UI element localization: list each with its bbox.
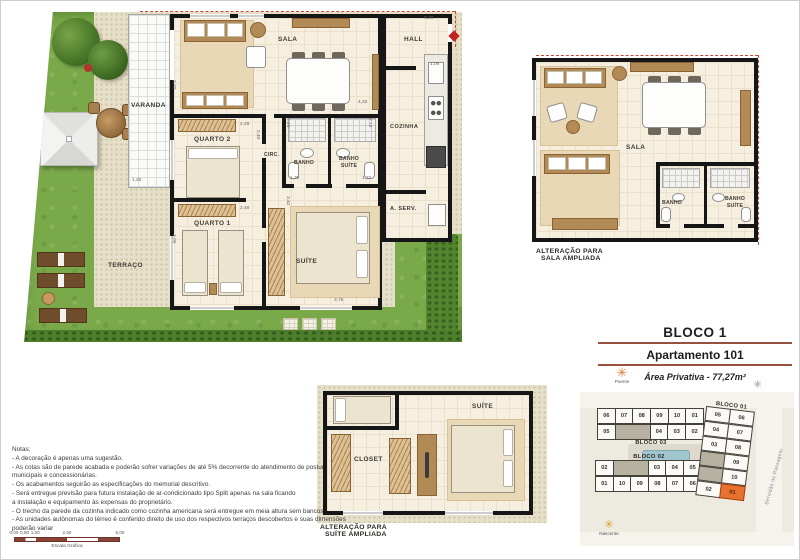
sideboard: [552, 218, 618, 230]
sofa-cushion: [207, 23, 225, 37]
note-line: municipais e concessionárias.: [12, 472, 357, 481]
stove: [428, 96, 444, 120]
interior-wall: [174, 114, 262, 118]
scale-tick-label: 0,50: [20, 530, 29, 535]
flower-icon: [84, 64, 92, 72]
unit-cell: 08: [648, 476, 667, 492]
shower: [662, 168, 700, 188]
unit-cell: 07: [615, 408, 634, 424]
block-core: [615, 424, 651, 440]
bathroom-sink: [300, 148, 314, 158]
varanda-door-opening: [170, 30, 174, 80]
sofa-cushion: [226, 95, 244, 106]
room-label-banho: BANHO: [294, 160, 314, 166]
interior-wall: [174, 198, 246, 202]
room-label-alt-sala: SALA: [626, 144, 645, 151]
window: [343, 511, 383, 515]
shower: [710, 168, 750, 188]
sofa-cushion: [547, 71, 564, 84]
bloco3-row1: 060708091001: [598, 408, 704, 424]
nightstand: [209, 283, 217, 295]
sofa-cushion: [566, 71, 583, 84]
lounger: [37, 273, 85, 288]
room-label-banho-suite: BANHO SUÍTE: [336, 156, 362, 170]
lounger: [37, 252, 85, 267]
boundary-dashed-line: [536, 55, 758, 56]
poente-marker: ✳ Poente: [604, 366, 640, 384]
unit-cell: 07: [666, 476, 685, 492]
block-core: [613, 460, 649, 476]
side-table: [250, 22, 266, 38]
side-table: [612, 66, 627, 81]
note-line: a instalação e equipamento às expensas d…: [12, 499, 357, 508]
wardrobe: [178, 204, 236, 217]
hedge-bottom: [22, 330, 462, 342]
bed-pillow: [188, 148, 238, 159]
tv-screen: [425, 452, 429, 478]
shower: [334, 118, 376, 142]
floorplan-page: TERRAÇO VARANDA: [0, 0, 800, 560]
notes-block: Notas: - A decoração é apenas uma sugest…: [12, 446, 357, 534]
unit-cell: 10: [668, 408, 687, 424]
room-label-alt-banho: BANHO: [662, 200, 682, 206]
unit-cell: 01: [685, 408, 704, 424]
bath-wall: [738, 224, 754, 228]
bed-pillow: [220, 282, 242, 293]
toilet: [661, 207, 671, 222]
boundary-dashed-line: [140, 11, 455, 12]
alt-suite-caption: ALTERAÇÃO PARA SUÍTE AMPLIADA: [320, 524, 387, 538]
sofa-cushion: [588, 157, 606, 170]
scale-ticks: 0,000,501,002,505,00: [14, 530, 120, 536]
kitchen-sink: [428, 62, 444, 84]
poente-label: Poente: [604, 379, 640, 384]
interior-wall: [274, 114, 378, 118]
note-line: - As unidades autônomas do térreo é conf…: [12, 516, 357, 525]
bath-wall: [346, 184, 382, 188]
sofa-cushion: [585, 71, 602, 84]
tree-icon: [88, 40, 128, 80]
interior-wall: [262, 114, 266, 144]
bed-pillow: [356, 216, 368, 244]
bloco3-row2: 05040302: [598, 424, 704, 440]
window: [445, 511, 493, 515]
unit-cell: 10: [613, 476, 632, 492]
unit-cell: 02: [685, 424, 704, 440]
room-label-alt-banho-suite: BANHO SUÍTE: [722, 196, 748, 210]
sofa-cushion: [186, 95, 204, 106]
bath-divider-wall: [328, 114, 331, 188]
note-line: - As cotas são de parede acabada e poder…: [12, 464, 357, 473]
window: [532, 80, 536, 116]
note-line: - Será entregue previsão para futura ins…: [12, 490, 357, 499]
laundry-tank: [428, 204, 446, 226]
aserv-wall: [386, 190, 426, 194]
toilet: [364, 162, 375, 179]
dining-table: [286, 58, 350, 104]
bath-divider-wall: [704, 162, 707, 228]
scale-tick-label: 0,00: [10, 530, 19, 535]
unit-cell: 01: [595, 476, 614, 492]
sofa-cushion: [568, 157, 586, 170]
paver: [302, 318, 317, 330]
unit-cell: 03: [648, 460, 667, 476]
scale-label: Escala Gráfica: [14, 544, 120, 549]
nascente-sun-icon: ✳: [592, 520, 626, 531]
poente-sun-icon: ✳: [604, 366, 640, 379]
bloco2-row1: 02030405: [596, 460, 702, 476]
ottoman: [42, 292, 55, 305]
alt-sala-caption: ALTERAÇÃO PARA SALA AMPLIADA: [536, 248, 603, 262]
room-label-circ: CIRC.: [264, 152, 279, 158]
nascente-label: Nascente: [592, 531, 626, 536]
paver: [283, 318, 298, 330]
window: [238, 14, 264, 18]
window: [532, 140, 536, 176]
refrigerator: [426, 146, 446, 168]
varanda-area: [128, 14, 170, 188]
room-label-quarto2: QUARTO 2: [194, 136, 231, 143]
unit-cell: 02: [595, 460, 614, 476]
bath-wall: [656, 162, 660, 228]
interior-wall: [262, 158, 266, 228]
notes-title: Notas:: [12, 446, 357, 455]
scale-tick-label: 2,50: [63, 530, 72, 535]
interior-wall: [395, 395, 399, 430]
room-label-suite: SUÍTE: [296, 258, 317, 265]
scale-tick-label: 1,00: [31, 530, 40, 535]
bath-wall: [656, 224, 670, 228]
room-label-sala: SALA: [278, 36, 297, 43]
room-label-hall: HALL: [404, 36, 423, 43]
scale-tick-label: 5,00: [116, 530, 125, 535]
closet-wardrobe: [389, 438, 411, 494]
bloco3-building: 060708091001 05040302 BLOCO 03: [598, 408, 704, 446]
garden-chair: [88, 102, 100, 114]
dining-table: [642, 82, 706, 128]
lounger: [39, 308, 87, 323]
window: [170, 140, 174, 180]
room-label-closet: CLOSET: [354, 456, 383, 463]
window: [190, 306, 234, 310]
unit-cell: 04: [650, 424, 669, 440]
note-line: - A decoração é apenas uma sugestão.: [12, 455, 357, 464]
window: [300, 306, 352, 310]
room-label-quarto1: QUARTO 1: [194, 220, 231, 227]
bath-wall: [282, 114, 286, 184]
unit-cell: 08: [632, 408, 651, 424]
boundary-dashed-line: [758, 55, 759, 245]
armchair: [246, 46, 266, 68]
bloco2-row2: 011009080706: [596, 476, 702, 492]
bed-pillow: [335, 398, 346, 422]
bed-pillow: [356, 250, 368, 278]
sideboard: [292, 18, 350, 28]
sofa-cushion: [548, 157, 566, 170]
note-line: - Os acabamentos seguirão as especificaç…: [12, 481, 357, 490]
room-label-terraco: TERRAÇO: [108, 262, 143, 269]
boundary-dashed-line: [455, 11, 456, 47]
sofa-cushion: [227, 23, 243, 37]
window: [190, 14, 230, 18]
notes-lines: - A decoração é apenas uma sugestão.- As…: [12, 455, 357, 534]
unit-cell: 03: [667, 424, 686, 440]
bloco-title: BLOCO 1: [598, 325, 792, 340]
bath-wall: [282, 184, 294, 188]
unit-cell-highlighted: 01: [719, 483, 746, 501]
unit-cell: 09: [650, 408, 669, 424]
room-label-cozinha: COZINHA: [390, 124, 418, 130]
bed-pillow: [184, 282, 206, 293]
unit-cell: 09: [630, 476, 649, 492]
interior-wall: [327, 426, 399, 430]
wardrobe: [268, 208, 285, 296]
unit-cell: 04: [665, 460, 684, 476]
scale-bar: 0,000,501,002,505,00 Escala Gráfica: [14, 530, 124, 552]
unit-cell: 05: [597, 424, 616, 440]
paver: [321, 318, 336, 330]
interior-wall: [262, 242, 266, 306]
scale-segments: [14, 537, 120, 542]
wardrobe: [178, 119, 236, 132]
sofa-cushion: [187, 23, 205, 37]
console: [740, 90, 751, 146]
sofa-cushion: [206, 95, 224, 106]
room-label-alt-suite: SUÍTE: [472, 403, 493, 410]
bloco1-grid: 05060407030809100201: [696, 406, 755, 501]
bed-pillow: [503, 429, 513, 456]
compass-icon: ✳: [753, 378, 762, 391]
unit-cell: 06: [597, 408, 616, 424]
sideboard: [630, 62, 694, 72]
kitchen-bar-counter: [372, 54, 379, 110]
nascente-marker: ✳ Nascente: [592, 520, 626, 536]
closet-wardrobe: [331, 434, 351, 492]
bloco1-building: BLOCO 01 05060407030809100201: [696, 400, 755, 501]
title-underline: [598, 342, 792, 344]
site-plan: 060708091001 05040302 BLOCO 03 BLOCO 02 …: [580, 392, 794, 546]
apartment-title: Apartamento 101: [598, 348, 792, 362]
hedge-right: [426, 234, 458, 342]
bed-pillow: [503, 460, 513, 487]
gazebo-finial: [66, 136, 72, 142]
hall-wall: [386, 66, 416, 70]
bloco3-label: BLOCO 03: [598, 440, 704, 446]
unit-cell: 02: [695, 480, 722, 498]
shower: [288, 118, 326, 142]
window: [170, 236, 174, 280]
coffee-table: [566, 120, 580, 134]
room-label-varanda: VARANDA: [131, 102, 166, 109]
note-line: - O trecho da parede da cozinha indicado…: [12, 508, 357, 517]
bloco2-building: BLOCO 02 02030405 011009080706: [596, 454, 702, 492]
room-label-aserv: A. SERV.: [390, 206, 417, 212]
